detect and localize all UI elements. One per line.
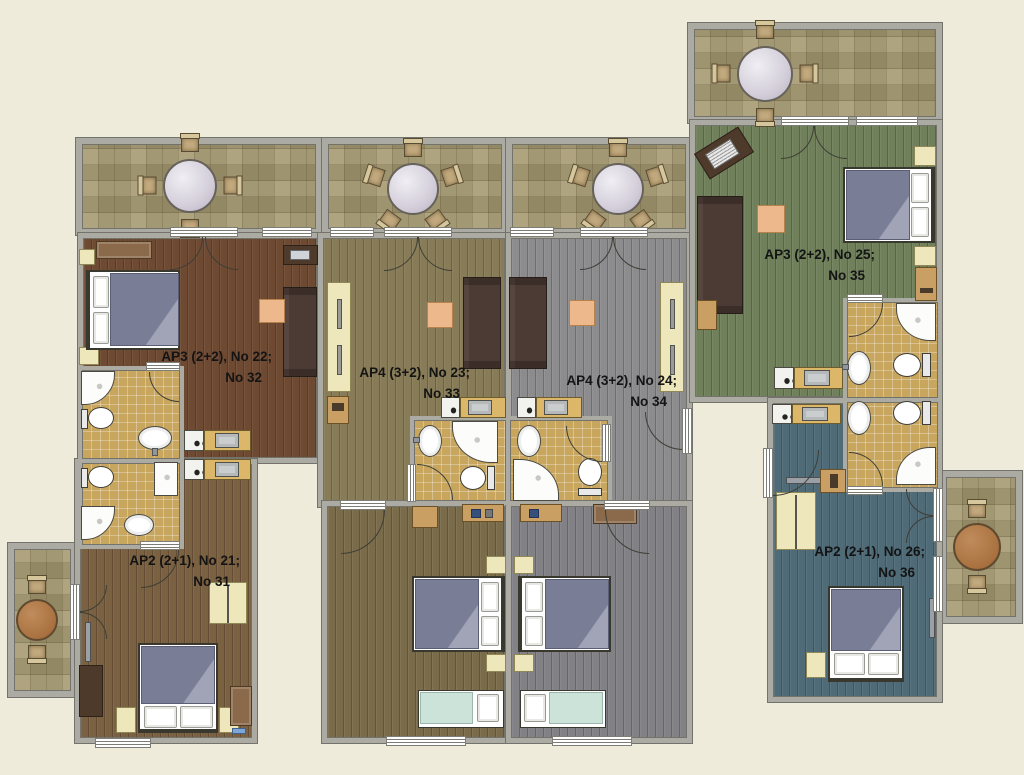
double-bed bbox=[86, 270, 180, 350]
pillow bbox=[524, 694, 546, 722]
window bbox=[933, 556, 943, 612]
toilet-tank bbox=[922, 353, 931, 377]
apartment-label-line2: No 33 bbox=[298, 383, 470, 404]
nightstand bbox=[486, 556, 506, 574]
apartment-label-line2: No 31 bbox=[68, 571, 240, 592]
label-ap24: AP4 (3+2), No 24; No 34 bbox=[505, 370, 677, 412]
faucet bbox=[842, 364, 849, 370]
pillow bbox=[525, 582, 543, 612]
round-table bbox=[163, 159, 217, 213]
label-ap26: AP2 (2+1), No 26; No 36 bbox=[753, 541, 925, 583]
window bbox=[330, 227, 374, 237]
nightstand bbox=[116, 707, 136, 733]
coffee-table bbox=[427, 302, 453, 328]
nightstand bbox=[514, 556, 534, 574]
door-gap bbox=[580, 227, 648, 237]
pillow bbox=[525, 616, 543, 646]
door-gap bbox=[602, 424, 611, 462]
toilet-tank bbox=[81, 409, 88, 429]
blanket bbox=[846, 170, 910, 240]
nightstand bbox=[914, 146, 936, 166]
faucet bbox=[152, 448, 158, 456]
door-gap bbox=[384, 227, 452, 237]
nightstand bbox=[806, 652, 826, 678]
window bbox=[552, 736, 632, 746]
double-bed bbox=[843, 167, 935, 243]
chair bbox=[716, 65, 731, 83]
pillow bbox=[180, 706, 213, 728]
apartment-label-line1: AP4 (3+2), No 23; bbox=[298, 362, 470, 383]
round-table bbox=[592, 163, 644, 215]
toilet bbox=[88, 407, 114, 429]
accent-item bbox=[830, 474, 838, 488]
blanket bbox=[415, 579, 479, 649]
accent-item bbox=[485, 509, 493, 518]
sofa bbox=[509, 277, 547, 369]
double-bed bbox=[138, 643, 218, 733]
door-gap bbox=[847, 294, 883, 303]
double-bed bbox=[518, 576, 611, 652]
toilet bbox=[460, 466, 486, 490]
window bbox=[856, 116, 918, 126]
nightstand bbox=[486, 654, 506, 672]
nightstand bbox=[914, 246, 936, 266]
label-ap25: AP3 (2+2), No 25; No 35 bbox=[703, 244, 875, 286]
coffee-table bbox=[259, 299, 285, 323]
apartment-label-line2: No 32 bbox=[100, 367, 272, 388]
round-table-wood bbox=[953, 523, 1001, 571]
pillow bbox=[144, 706, 177, 728]
shower bbox=[154, 462, 178, 496]
window bbox=[386, 736, 466, 746]
desk bbox=[462, 504, 504, 522]
blanket bbox=[420, 692, 473, 724]
blanket bbox=[831, 589, 901, 651]
chair bbox=[224, 177, 239, 195]
pillow bbox=[868, 653, 899, 675]
door-gap bbox=[170, 227, 238, 237]
chair bbox=[609, 142, 627, 157]
stove bbox=[774, 367, 794, 389]
chair bbox=[142, 177, 157, 195]
window bbox=[262, 227, 312, 237]
pillow bbox=[477, 694, 499, 722]
stove bbox=[772, 404, 792, 424]
single-bed bbox=[418, 690, 504, 728]
blanket bbox=[549, 692, 603, 724]
toilet-tank bbox=[487, 466, 495, 490]
blanket bbox=[141, 646, 215, 704]
door-gap bbox=[781, 116, 849, 126]
sink bbox=[124, 514, 154, 536]
accent-item bbox=[332, 403, 344, 411]
kitchen-sink bbox=[215, 462, 239, 477]
toilet-tank bbox=[81, 468, 88, 488]
round-table-wood bbox=[16, 599, 58, 641]
window bbox=[510, 227, 554, 237]
kitchen-sink bbox=[215, 433, 239, 448]
nightstand bbox=[79, 249, 95, 265]
pillow bbox=[911, 173, 929, 203]
toilet bbox=[893, 353, 921, 377]
sink bbox=[138, 426, 172, 450]
desk bbox=[520, 504, 562, 522]
label-ap23: AP4 (3+2), No 23; No 33 bbox=[298, 362, 470, 404]
sink bbox=[517, 425, 541, 457]
apartment-label-line2: No 34 bbox=[505, 391, 677, 412]
toilet bbox=[578, 458, 602, 486]
chair bbox=[968, 503, 986, 518]
chair bbox=[28, 579, 46, 594]
apartment-label-line2: No 35 bbox=[703, 265, 875, 286]
apartment-label-line1: AP3 (2+2), No 25; bbox=[703, 244, 875, 265]
apartment-label-line1: AP4 (3+2), No 24; bbox=[505, 370, 677, 391]
toilet bbox=[88, 466, 114, 488]
laptop bbox=[529, 509, 539, 518]
blanket bbox=[545, 579, 609, 649]
accent-item bbox=[232, 728, 246, 734]
door-gap bbox=[847, 486, 883, 495]
pillow bbox=[834, 653, 865, 675]
coffee-table bbox=[569, 300, 595, 326]
sofa bbox=[463, 277, 501, 369]
window bbox=[95, 738, 151, 748]
faucet bbox=[413, 437, 420, 443]
pillow bbox=[481, 582, 499, 612]
door-gap bbox=[682, 408, 692, 454]
toilet-tank bbox=[922, 401, 931, 425]
stove bbox=[184, 430, 204, 451]
chair bbox=[756, 24, 774, 39]
sink bbox=[418, 425, 442, 457]
label-ap21: AP2 (2+1), No 21; No 31 bbox=[68, 550, 240, 592]
door-gap bbox=[70, 584, 80, 640]
pillow bbox=[481, 616, 499, 646]
kitchen-sink bbox=[802, 407, 828, 421]
single-bed bbox=[520, 690, 606, 728]
door-gap bbox=[340, 500, 386, 510]
blanket bbox=[110, 273, 179, 346]
label-ap22: AP3 (2+2), No 22; No 32 bbox=[100, 346, 272, 388]
kitchen-sink bbox=[804, 370, 830, 386]
pillow bbox=[93, 276, 109, 308]
door-gap bbox=[604, 500, 650, 510]
stove bbox=[184, 459, 204, 480]
apartment-label-line2: No 36 bbox=[753, 562, 925, 583]
coffee-table bbox=[757, 205, 785, 233]
desk bbox=[79, 665, 103, 717]
wardrobe-handle bbox=[337, 299, 342, 329]
drawer-handle bbox=[920, 288, 933, 293]
round-table bbox=[737, 46, 793, 102]
desk bbox=[283, 245, 318, 265]
door-gap bbox=[407, 464, 416, 502]
round-table bbox=[387, 163, 439, 215]
chair bbox=[800, 65, 815, 83]
pillow bbox=[93, 312, 109, 344]
chair bbox=[968, 575, 986, 590]
toilet-tank bbox=[578, 488, 602, 496]
door-gap bbox=[140, 541, 180, 550]
floor-plan: AP3 (2+2), No 22; No 32 AP4 (3+2), No 23… bbox=[0, 0, 1024, 775]
wardrobe-handle bbox=[670, 299, 675, 329]
chair bbox=[756, 108, 774, 123]
apartment-label-line1: AP2 (2+1), No 21; bbox=[68, 550, 240, 571]
toilet bbox=[893, 401, 921, 425]
chair bbox=[28, 645, 46, 660]
pillow bbox=[911, 207, 929, 237]
laptop bbox=[471, 509, 481, 518]
double-bed bbox=[412, 576, 505, 652]
door-gap bbox=[933, 488, 943, 542]
dresser bbox=[230, 686, 252, 726]
apartment-label-line1: AP2 (2+1), No 26; bbox=[753, 541, 925, 562]
double-bed bbox=[828, 586, 904, 682]
apartment-label-line1: AP3 (2+2), No 22; bbox=[100, 346, 272, 367]
dresser bbox=[96, 241, 152, 259]
chair bbox=[181, 137, 199, 152]
laptop bbox=[290, 250, 310, 260]
stool bbox=[412, 506, 438, 528]
cabinet bbox=[697, 300, 717, 330]
door-gap bbox=[763, 448, 773, 498]
dresser bbox=[915, 267, 937, 301]
kitchen-sink bbox=[468, 400, 492, 415]
side-table bbox=[820, 469, 846, 493]
chair bbox=[404, 142, 422, 157]
sink bbox=[847, 401, 871, 435]
nightstand bbox=[514, 654, 534, 672]
sink bbox=[847, 351, 871, 385]
